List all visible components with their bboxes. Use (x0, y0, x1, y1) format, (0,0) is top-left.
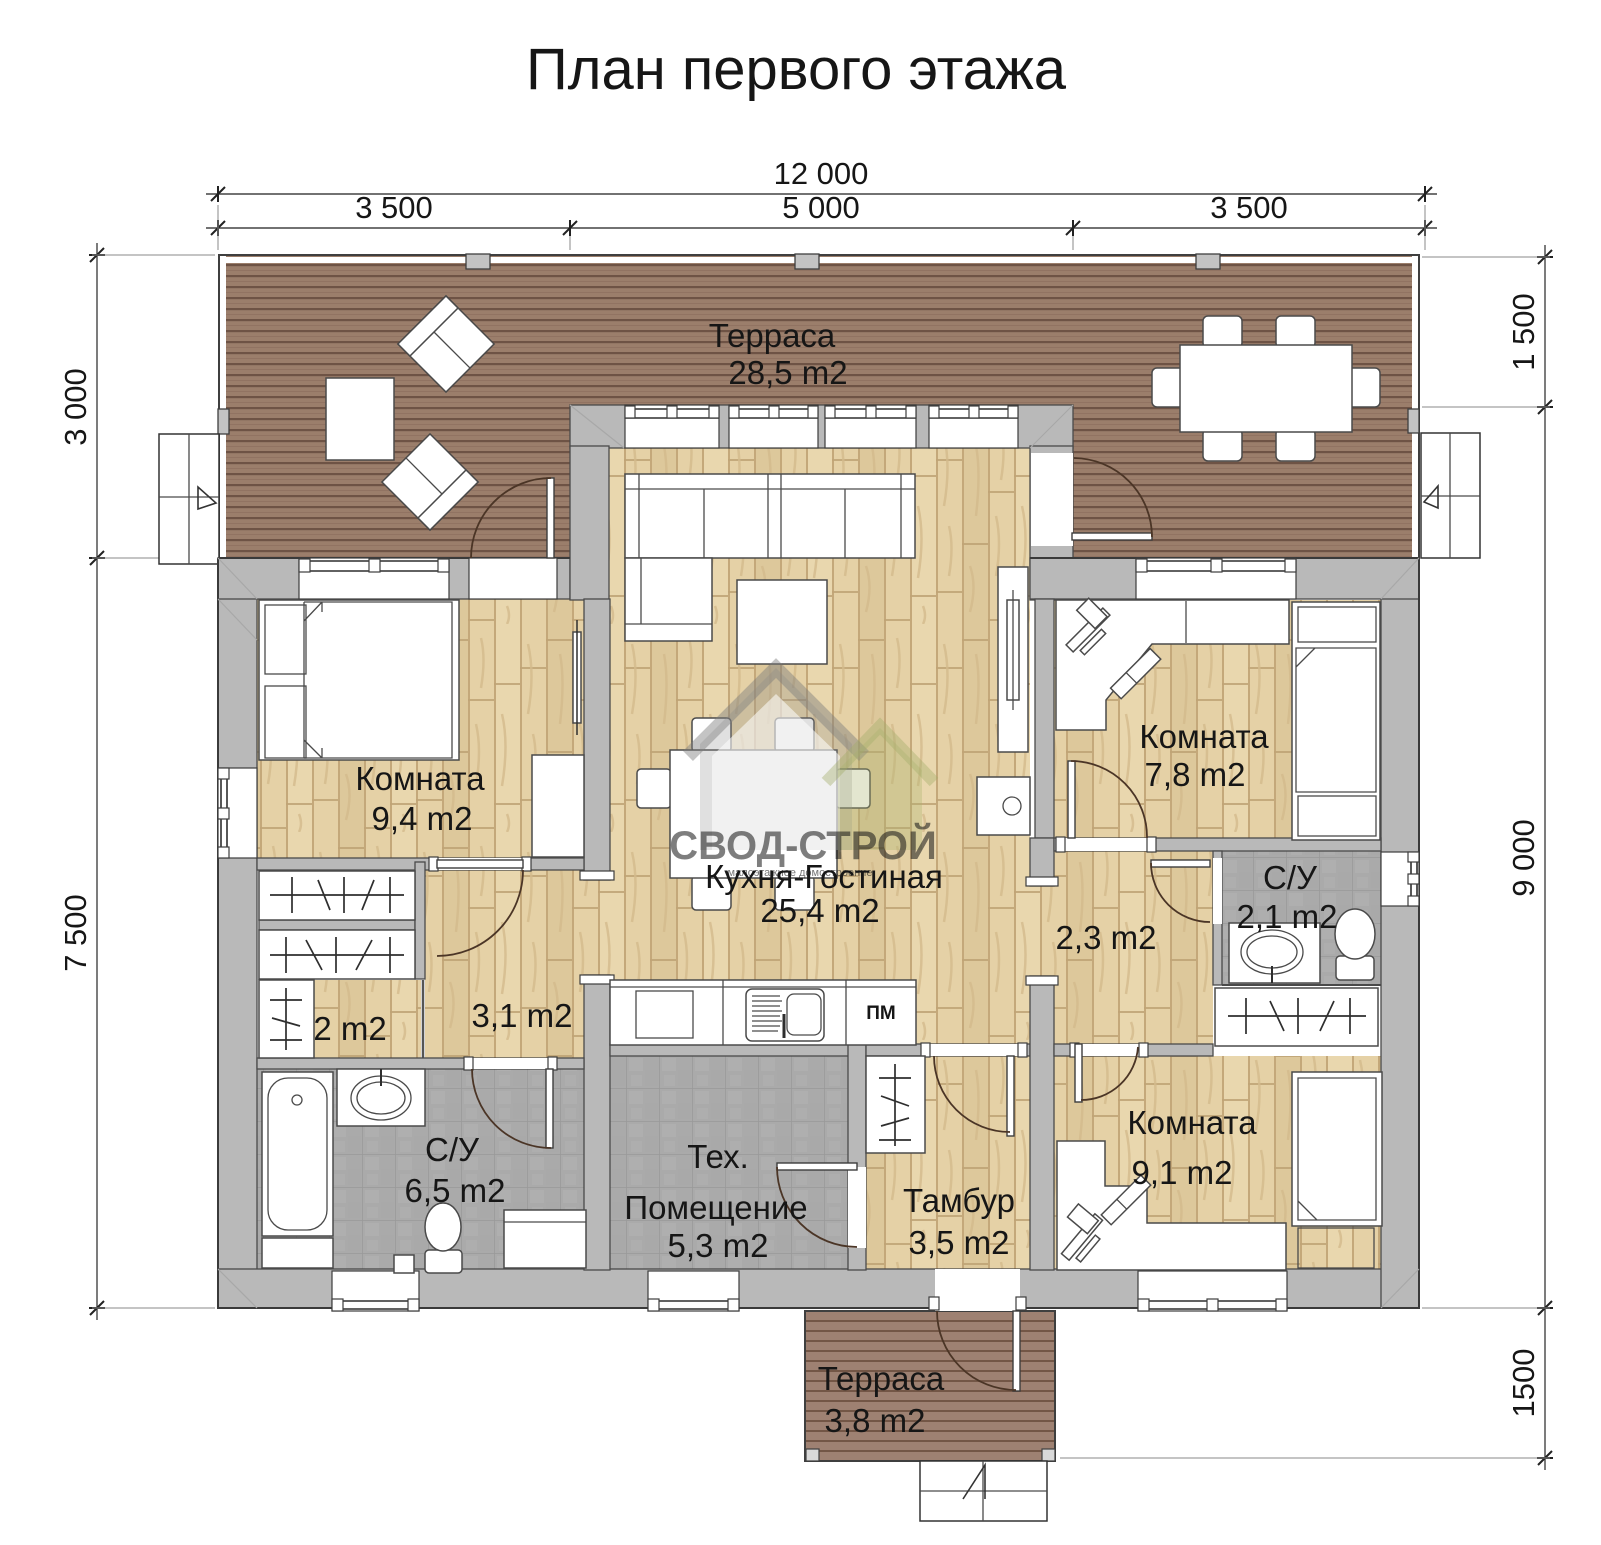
svg-text:Терраса: Терраса (709, 317, 836, 354)
svg-text:9 000: 9 000 (1506, 819, 1541, 897)
svg-text:3 500: 3 500 (355, 190, 433, 225)
svg-text:Тамбур: Тамбур (903, 1182, 1015, 1219)
svg-text:25,4 m2: 25,4 m2 (760, 892, 879, 929)
svg-text:7,8 m2: 7,8 m2 (1145, 756, 1246, 793)
svg-text:5,3 m2: 5,3 m2 (668, 1227, 769, 1264)
svg-text:3,8 m2: 3,8 m2 (825, 1402, 926, 1439)
svg-text:Комната: Комната (355, 760, 485, 797)
svg-text:ПМ: ПМ (866, 1003, 895, 1024)
svg-text:7 500: 7 500 (58, 894, 93, 972)
svg-text:Терраса: Терраса (818, 1360, 945, 1397)
svg-text:Комната: Комната (1139, 718, 1269, 755)
svg-text:Помещение: Помещение (624, 1189, 807, 1226)
svg-text:2,1 m2: 2,1 m2 (1237, 898, 1338, 935)
svg-text:1 500: 1 500 (1506, 293, 1541, 371)
svg-text:Тех.: Тех. (687, 1138, 749, 1175)
svg-text:С/У: С/У (425, 1131, 480, 1168)
svg-text:Кухня-Гостиная: Кухня-Гостиная (705, 858, 943, 895)
svg-text:28,5 m2: 28,5 m2 (728, 354, 847, 391)
svg-text:2,3 m2: 2,3 m2 (1056, 919, 1157, 956)
svg-text:Комната: Комната (1127, 1104, 1257, 1141)
svg-text:5 000: 5 000 (782, 190, 860, 225)
svg-text:12 000: 12 000 (774, 156, 869, 191)
svg-text:3,1 m2: 3,1 m2 (472, 997, 573, 1034)
svg-text:3 500: 3 500 (1210, 190, 1288, 225)
svg-text:9,1 m2: 9,1 m2 (1132, 1154, 1233, 1191)
svg-text:9,4 m2: 9,4 m2 (372, 800, 473, 837)
svg-text:1500: 1500 (1506, 1349, 1541, 1418)
svg-text:6,5 m2: 6,5 m2 (405, 1172, 506, 1209)
svg-text:3,5 m2: 3,5 m2 (909, 1224, 1010, 1261)
svg-text:С/У: С/У (1263, 859, 1318, 896)
svg-text:3 000: 3 000 (58, 368, 93, 446)
svg-text:План первого этажа: План первого этажа (526, 37, 1067, 102)
svg-text:2 m2: 2 m2 (313, 1010, 386, 1047)
